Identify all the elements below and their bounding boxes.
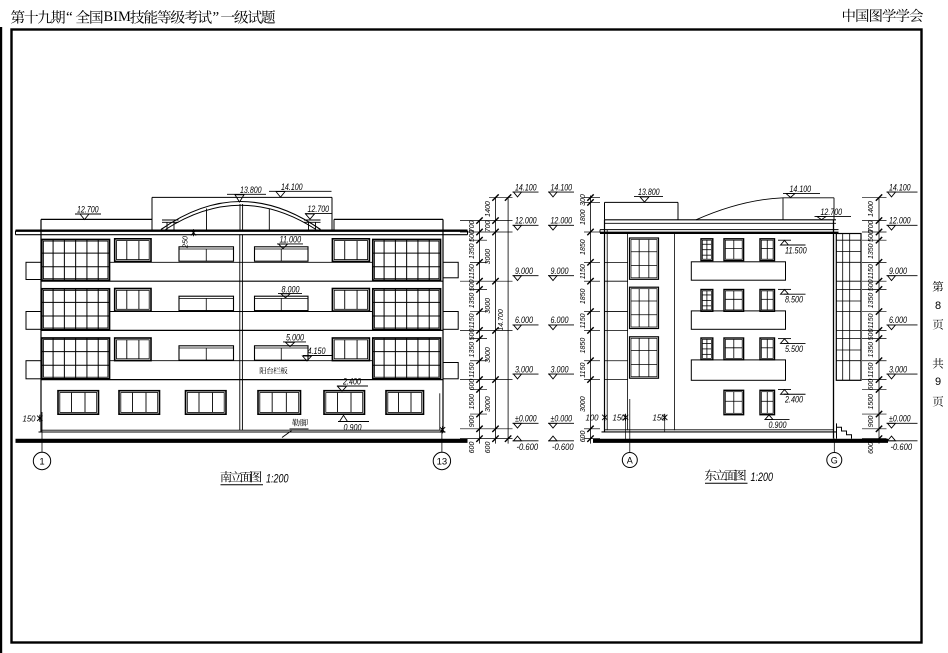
svg-text:9.000: 9.000 (551, 266, 570, 276)
svg-text:-0.600: -0.600 (552, 442, 574, 452)
svg-text:3.000: 3.000 (889, 364, 908, 374)
svg-text:500: 500 (469, 329, 476, 341)
svg-text:1800: 1800 (580, 209, 587, 225)
svg-text:600: 600 (469, 379, 476, 391)
svg-text:600: 600 (580, 431, 587, 443)
svg-text:6.000: 6.000 (889, 315, 908, 325)
svg-text:9: 9 (935, 376, 941, 388)
svg-text:1150: 1150 (469, 363, 476, 378)
svg-text:600: 600 (868, 379, 875, 391)
svg-text:11.000: 11.000 (280, 235, 302, 245)
svg-text:900: 900 (868, 415, 875, 427)
svg-text:1500: 1500 (868, 394, 875, 410)
svg-text:1:200: 1:200 (266, 474, 289, 486)
svg-text:1350: 1350 (868, 293, 875, 309)
svg-text:600: 600 (469, 442, 476, 454)
svg-text:12.000: 12.000 (515, 216, 537, 226)
svg-text:13.800: 13.800 (638, 187, 660, 197)
svg-text:1350: 1350 (469, 243, 476, 259)
svg-text:12.000: 12.000 (551, 216, 573, 226)
svg-text:1350: 1350 (868, 342, 875, 358)
svg-text:600: 600 (485, 442, 492, 454)
svg-text:2.400: 2.400 (784, 395, 803, 405)
svg-text:1150: 1150 (469, 264, 476, 279)
svg-text:300: 300 (580, 194, 587, 206)
svg-text:3000: 3000 (485, 396, 492, 412)
svg-text:3000: 3000 (485, 249, 492, 265)
svg-text:1150: 1150 (580, 264, 587, 279)
svg-text:8: 8 (935, 300, 941, 312)
svg-text:8.500: 8.500 (785, 295, 804, 305)
svg-text:8.000: 8.000 (282, 284, 301, 294)
svg-text:“: “ (66, 10, 73, 26)
svg-text:1150: 1150 (868, 264, 875, 279)
svg-text:1400: 1400 (868, 201, 875, 217)
svg-text:1850: 1850 (580, 239, 587, 255)
svg-text:9.000: 9.000 (515, 266, 534, 276)
svg-text:14.100: 14.100 (551, 182, 573, 192)
svg-text:6.000: 6.000 (551, 315, 570, 325)
svg-text:1150: 1150 (868, 363, 875, 378)
svg-text:600: 600 (868, 442, 875, 454)
svg-text:”: ” (213, 10, 220, 26)
svg-text:13.800: 13.800 (240, 185, 262, 195)
svg-text:A: A (627, 455, 633, 465)
svg-text:1500: 1500 (469, 394, 476, 410)
svg-text:1150: 1150 (580, 363, 587, 378)
svg-text:BIM: BIM (104, 9, 132, 25)
svg-text:3.000: 3.000 (551, 364, 570, 374)
svg-text:1150: 1150 (580, 313, 587, 328)
svg-text:150: 150 (613, 414, 627, 423)
svg-text:5.000: 5.000 (286, 333, 305, 343)
svg-text:5.500: 5.500 (785, 344, 804, 354)
svg-text:3000: 3000 (485, 298, 492, 314)
svg-text:1350: 1350 (469, 342, 476, 358)
svg-text:4.150: 4.150 (308, 346, 327, 356)
svg-text:-0.600: -0.600 (517, 442, 539, 452)
svg-text:±0.000: ±0.000 (889, 414, 911, 424)
svg-text:3000: 3000 (580, 396, 587, 412)
svg-text:12.700: 12.700 (77, 204, 99, 214)
svg-text:500: 500 (868, 329, 875, 341)
svg-text:1850: 1850 (580, 338, 587, 354)
svg-text:0.900: 0.900 (769, 420, 788, 430)
svg-text:12.700: 12.700 (308, 204, 330, 214)
svg-text:1850: 1850 (580, 288, 587, 304)
svg-text:-0.600: -0.600 (891, 442, 913, 452)
svg-text:2.400: 2.400 (342, 377, 361, 387)
svg-text:9.000: 9.000 (889, 266, 908, 276)
svg-text:12.700: 12.700 (821, 207, 843, 217)
svg-text:3000: 3000 (485, 347, 492, 363)
svg-text:14.100: 14.100 (515, 182, 537, 192)
svg-text:250: 250 (181, 235, 190, 249)
svg-text:150: 150 (23, 414, 37, 423)
svg-text:±0.000: ±0.000 (551, 414, 573, 424)
svg-text:±0.000: ±0.000 (515, 414, 537, 424)
svg-text:0.900: 0.900 (344, 422, 363, 432)
svg-text:500: 500 (868, 230, 875, 242)
svg-text:900: 900 (469, 415, 476, 427)
svg-text:500: 500 (469, 230, 476, 242)
svg-text:1400: 1400 (485, 201, 492, 217)
svg-text:G: G (831, 455, 838, 465)
svg-text:1350: 1350 (469, 293, 476, 309)
svg-text:700: 700 (485, 220, 492, 232)
svg-text:100: 100 (586, 414, 600, 423)
svg-text:11.500: 11.500 (785, 245, 807, 255)
svg-text:13: 13 (437, 457, 448, 468)
svg-text:1:200: 1:200 (751, 472, 774, 484)
svg-text:14.100: 14.100 (889, 182, 911, 192)
svg-text:14.700: 14.700 (498, 309, 505, 331)
svg-text:14.100: 14.100 (790, 184, 812, 194)
svg-text:14.100: 14.100 (281, 182, 303, 192)
svg-text:1: 1 (39, 457, 44, 468)
svg-text:500: 500 (469, 279, 476, 291)
svg-text:1150: 1150 (868, 313, 875, 328)
svg-text:500: 500 (868, 279, 875, 291)
svg-text:1150: 1150 (469, 313, 476, 328)
svg-text:6.000: 6.000 (515, 315, 534, 325)
svg-text:1350: 1350 (868, 243, 875, 259)
svg-text:12.000: 12.000 (889, 216, 911, 226)
svg-text:3.000: 3.000 (515, 364, 534, 374)
